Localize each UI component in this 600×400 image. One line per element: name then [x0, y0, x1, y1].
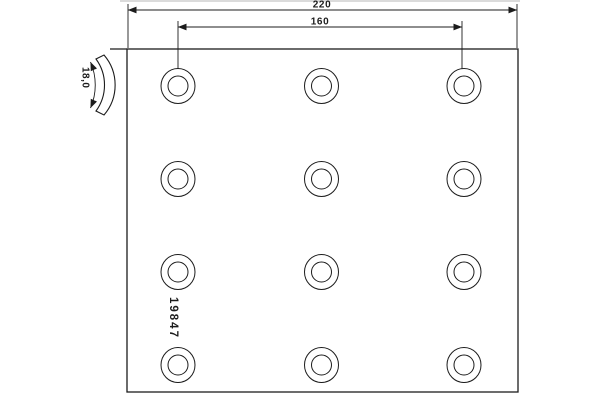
rivet-hole: [447, 255, 481, 290]
rivet-hole-inner: [312, 169, 332, 189]
rivet-hole: [305, 162, 339, 197]
rivet-hole: [447, 69, 481, 104]
rivet-hole-inner: [312, 262, 332, 282]
drawing-canvas: 220 160 18,0 19847: [0, 0, 600, 400]
rivet-hole: [161, 348, 195, 383]
rivet-hole: [305, 348, 339, 383]
dimension-label-hole-spacing: 160: [311, 17, 330, 28]
rivet-hole-inner: [168, 355, 188, 375]
rivet-hole: [161, 162, 195, 197]
rivet-hole-inner: [312, 76, 332, 96]
rivet-hole-inner: [454, 169, 474, 189]
rivet-hole-grid: [161, 69, 481, 383]
rivet-hole-inner: [168, 262, 188, 282]
rivet-hole: [161, 69, 195, 104]
dimension-hole-spacing: 160: [178, 17, 462, 71]
rivet-hole: [305, 255, 339, 290]
lining-side-view: 18,0: [80, 55, 116, 115]
dimension-label-overall: 220: [313, 0, 332, 11]
brake-lining-drawing: 220 160 18,0 19847: [0, 0, 600, 400]
rivet-hole-inner: [454, 76, 474, 96]
rivet-hole-inner: [168, 169, 188, 189]
part-number-label: 19847: [167, 297, 179, 339]
rivet-hole-inner: [454, 355, 474, 375]
rivet-hole: [305, 69, 339, 104]
rivet-hole: [447, 162, 481, 197]
rivet-hole-inner: [454, 262, 474, 282]
rivet-hole: [161, 255, 195, 290]
rivet-hole-inner: [312, 355, 332, 375]
rivet-hole-inner: [168, 76, 188, 96]
lining-cross-section: [96, 55, 115, 115]
thickness-label: 18,0: [80, 67, 91, 88]
rivet-hole: [447, 348, 481, 383]
